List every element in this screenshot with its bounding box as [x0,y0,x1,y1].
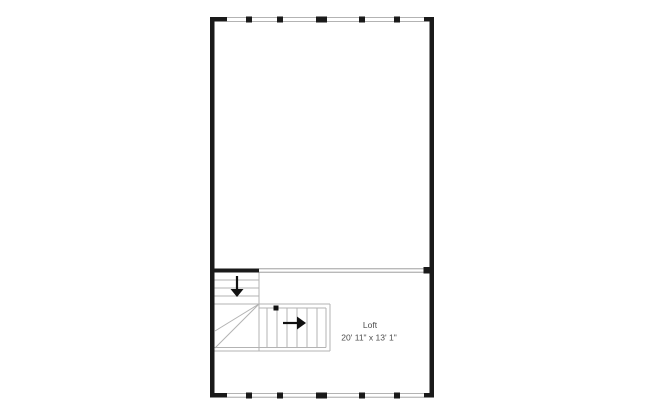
winder-tread [215,304,259,348]
exterior-walls [210,17,434,398]
divider-end-post [424,267,430,274]
room-label-group: Loft 20' 11" x 13' 1" [341,320,396,343]
window-mullion [359,393,365,399]
room-label: Loft [363,320,378,330]
floor-plan-canvas: Loft 20' 11" x 13' 1" [0,0,650,420]
window-mullion [394,17,400,23]
window-mullion [359,17,365,23]
right-wall [430,17,435,398]
stair-down-arrow-icon [231,276,244,297]
window-mullion [246,393,252,399]
staircase [215,273,331,352]
window-mullion [316,393,327,399]
stair-right-arrow-icon [283,317,306,330]
stair-start-marker [274,306,279,311]
room-dimensions: 20' 11" x 13' 1" [341,333,396,343]
window-mullion [277,17,283,23]
window-mullion [277,393,283,399]
top-window-wall [210,17,434,23]
window-mullion [246,17,252,23]
left-wall [210,17,215,398]
window-mullion [316,17,327,23]
winder-tread [215,304,259,331]
bottom-window-wall [210,393,434,399]
floor-plan: Loft 20' 11" x 13' 1" [0,0,650,420]
loft-divider-wall [210,267,430,274]
window-mullion [394,393,400,399]
